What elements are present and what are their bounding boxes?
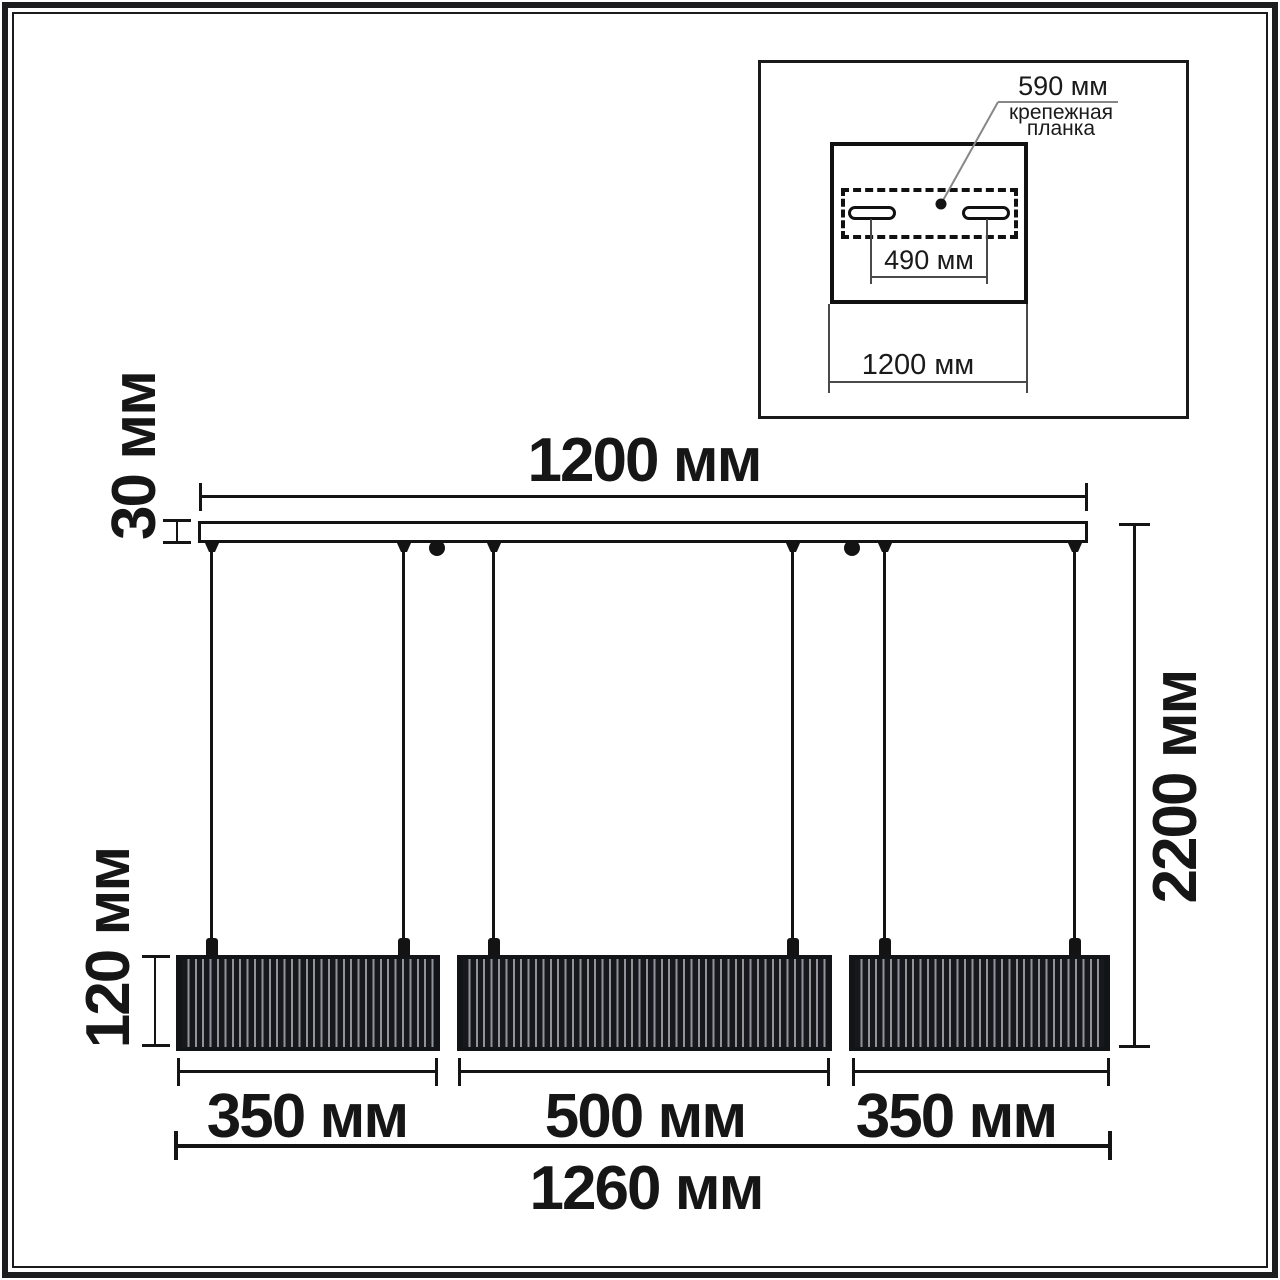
bar-width-label: 1200 мм [394,430,894,492]
dim-tick [199,483,202,511]
shade-right [849,955,1110,1051]
dim-tick [1119,523,1150,526]
hole-spacing-label: 490 мм [849,246,1009,274]
bar-height-label: 30 мм [104,346,160,566]
suspension-cord [402,543,405,939]
dim-tick [827,1058,830,1086]
canopy-width-label: 1200 мм [828,350,1008,380]
bracket-line [154,956,156,1047]
bracket-tick [142,1044,170,1047]
bracket-tick [142,955,170,958]
suspension-cord [492,543,495,939]
dim-line-hole-spacing [870,276,988,278]
dim-line-canopy-width [828,381,1028,383]
ceiling-bar [198,521,1088,543]
suspension-cord [883,543,886,939]
suspension-cord [210,543,213,939]
shade-center-width-label: 500 мм [485,1086,805,1148]
dim-line-total-width [176,1144,1110,1148]
dim-tick [458,1058,461,1086]
dim-line-bar-width [200,495,1088,498]
dim-tick [177,1058,180,1086]
dim-line-shade-left [178,1070,437,1073]
suspension-cord [1073,543,1076,939]
plate-length-label: 590 мм [983,72,1143,100]
bracket-line [176,521,178,543]
dim-tick [1085,483,1088,511]
total-width-label: 1260 мм [446,1158,846,1220]
pendant-light-dimension-drawing: 590 мм крепежная планка 490 мм 1200 мм 1… [0,0,1280,1280]
dim-tick [174,1131,178,1160]
shade-center [457,955,832,1051]
plate-name-label: крепежная планка [961,105,1161,137]
shade-right-width-label: 350 мм [796,1086,1116,1148]
leader-dot [936,199,947,210]
dim-tick [435,1058,438,1086]
shade-left-width-label: 350 мм [147,1086,467,1148]
dim-tick [1108,1131,1112,1160]
shade-left [176,955,440,1051]
total-height-label: 2200 мм [1145,652,1201,922]
dim-tick [1107,1058,1110,1086]
dim-line-shade-right [853,1070,1109,1073]
dim-tick [852,1058,855,1086]
dim-line-total-height [1133,524,1136,1048]
shade-height-label: 120 мм [78,833,134,1063]
suspension-cord [791,543,794,939]
dim-line-shade-center [459,1070,829,1073]
ext-line [1026,304,1028,393]
dim-tick [1119,1045,1150,1048]
